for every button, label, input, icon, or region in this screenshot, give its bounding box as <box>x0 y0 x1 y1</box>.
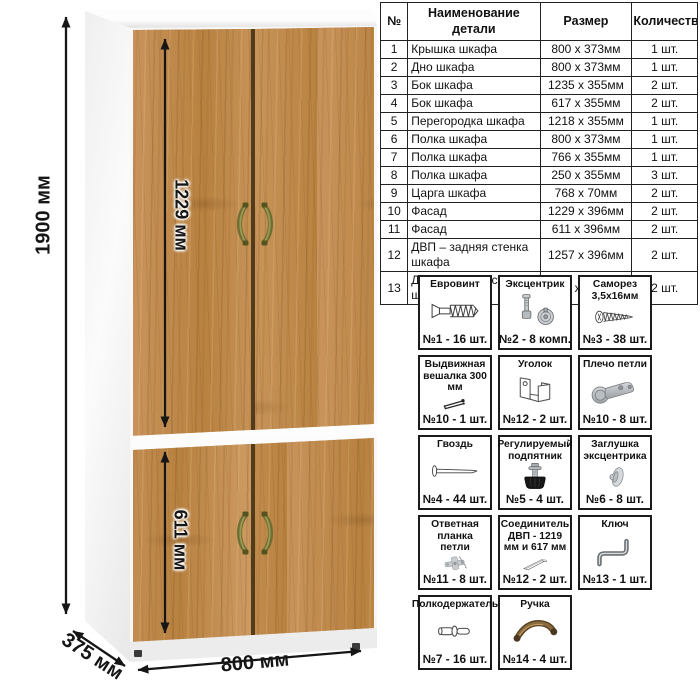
assembly-sheet: 1900 мм 1229 мм 611 мм 800 мм 375 мм № Н… <box>0 0 700 700</box>
hardware-item-name: Евровинт <box>430 279 480 291</box>
part-number-cell: 12 <box>381 239 408 272</box>
cam-lock-icon <box>504 293 566 329</box>
shelf-pin-icon <box>424 613 486 649</box>
table-row: 7 Полка шкафа 766 х 355мм 1 шт. <box>381 149 698 167</box>
hardware-item: Ключ №13 - 1 шт. <box>578 515 652 590</box>
table-row: 1 Крышка шкафа 800 х 373мм 1 шт. <box>381 41 698 59</box>
part-name-cell: ДВП – задняя стенка шкафа <box>408 239 540 272</box>
table-row: 4 Бок шкафа 617 х 355мм 2 шт. <box>381 95 698 113</box>
part-quantity-cell: 2 шт. <box>632 203 698 221</box>
hardware-item: Соединитель ДВП - 1219 мм и 617 мм №12 -… <box>498 515 572 590</box>
part-name-cell: Фасад <box>408 221 540 239</box>
part-number-cell: 2 <box>381 59 408 77</box>
hardware-item: Регулируемый подпятник №5 - 4 шт. <box>498 435 572 510</box>
hardware-item-icon-box <box>581 462 649 492</box>
hardware-item-name: Полкодержатель <box>412 599 498 611</box>
part-name-cell: Дно шкафа <box>408 59 540 77</box>
cam-cap-icon <box>584 462 646 492</box>
column-header-size: Размер <box>540 3 632 41</box>
hardware-item-count: №4 - 44 шт. <box>423 492 487 507</box>
part-name-cell: Полка шкафа <box>408 167 540 185</box>
table-row: 8 Полка шкафа 250 х 355мм 3 шт. <box>381 167 698 185</box>
part-number-cell: 8 <box>381 167 408 185</box>
hardware-item-count: №11 - 8 шт. <box>423 572 487 587</box>
dimension-total-height-label: 1900 мм <box>33 175 56 255</box>
hardware-item-name: Эксцентрик <box>505 279 564 291</box>
part-size-cell: 1218 х 355мм <box>540 113 632 131</box>
part-number-cell: 10 <box>381 203 408 221</box>
hardware-item: Уголок №12 - 2 шт. <box>498 355 572 430</box>
part-quantity-cell: 3 шт. <box>632 167 698 185</box>
hinge-plate-icon <box>424 554 486 572</box>
table-row: 9 Царга шкафа 768 х 70мм 2 шт. <box>381 185 698 203</box>
part-size-cell: 250 х 355мм <box>540 167 632 185</box>
hardware-item: Ручка №14 - 4 шт. <box>498 595 572 670</box>
parts-table: № Наименование детали Размер Количество … <box>380 2 698 305</box>
part-name-cell: Полка шкафа <box>408 149 540 167</box>
table-row: 6 Полка шкафа 800 х 373мм 1 шт. <box>381 131 698 149</box>
hardware-item-count: №2 - 8 комп. <box>499 332 571 347</box>
hardware-item: Плечо петли №10 - 8 шт. <box>578 355 652 430</box>
hardware-item-icon-box <box>501 371 569 412</box>
hardware-item: Саморез 3,5х16мм №3 - 38 шт. <box>578 275 652 350</box>
part-size-cell: 617 х 355мм <box>540 95 632 113</box>
part-size-cell: 1257 х 396мм <box>540 239 632 272</box>
part-number-cell: 11 <box>381 221 408 239</box>
part-size-cell: 800 х 373мм <box>540 41 632 59</box>
part-quantity-cell: 1 шт. <box>632 149 698 167</box>
handle-icon <box>504 613 566 649</box>
column-header-quantity: Количество <box>632 3 698 41</box>
hardware-item-count: №10 - 8 шт. <box>583 412 647 427</box>
part-size-cell: 1235 х 355мм <box>540 77 632 95</box>
hardware-item-count: №1 - 16 шт. <box>423 332 487 347</box>
part-number-cell: 13 <box>381 272 408 305</box>
hardware-item-count: №3 - 38 шт. <box>583 332 647 347</box>
hardware-item-icon-box <box>581 371 649 412</box>
hardware-item-icon-box <box>501 554 569 572</box>
cabinet-front <box>130 26 377 662</box>
part-size-cell: 800 х 373мм <box>540 131 632 149</box>
hex-key-icon <box>584 533 646 569</box>
cabinet-foot <box>352 643 360 650</box>
part-size-cell: 768 х 70мм <box>540 185 632 203</box>
hardware-item-count: №13 - 1 шт. <box>583 572 647 587</box>
hardware-item-icon-box <box>501 611 569 652</box>
hardware-item-name: Саморез 3,5х16мм <box>581 279 649 302</box>
part-name-cell: Перегородка шкафа <box>408 113 540 131</box>
hardware-item-name: Заглушка эксцентрика <box>581 439 649 462</box>
door-handle-icon <box>234 200 250 248</box>
hardware-item: Выдвижная вешалка 300 мм №10 - 1 шт. <box>418 355 492 430</box>
hardware-item-name: Плечо петли <box>583 359 647 371</box>
corner-bracket-icon <box>504 373 566 409</box>
hardware-item-icon-box <box>421 611 489 652</box>
part-name-cell: Фасад <box>408 203 540 221</box>
hinge-arm-icon <box>584 373 646 409</box>
hardware-item-count: №12 - 2 шт. <box>503 412 567 427</box>
part-quantity-cell: 1 шт. <box>632 59 698 77</box>
part-name-cell: Царга шкафа <box>408 185 540 203</box>
dimension-lower-door-label: 611 мм <box>170 510 191 571</box>
part-number-cell: 6 <box>381 131 408 149</box>
part-quantity-cell: 1 шт. <box>632 113 698 131</box>
hardware-item-count: №5 - 4 шт. <box>506 492 564 507</box>
cabinet-side-face <box>85 11 130 662</box>
part-number-cell: 3 <box>381 77 408 95</box>
hardware-item-icon-box <box>421 451 489 492</box>
hardware-item-count: №14 - 4 шт. <box>503 652 567 667</box>
hardware-item: Полкодержатель №7 - 16 шт. <box>418 595 492 670</box>
nail-icon <box>424 453 486 489</box>
hardware-item-icon-box <box>421 291 489 332</box>
hardware-item-count: №10 - 1 шт. <box>423 412 487 427</box>
hardware-item-name: Ответная планка петли <box>421 519 489 554</box>
hardware-item-name: Ручка <box>520 599 549 611</box>
part-number-cell: 4 <box>381 95 408 113</box>
hardware-item-name: Выдвижная вешалка 300 мм <box>421 359 489 394</box>
part-size-cell: 766 х 355мм <box>540 149 632 167</box>
part-number-cell: 5 <box>381 113 408 131</box>
table-row: 3 Бок шкафа 1235 х 355мм 2 шт. <box>381 77 698 95</box>
hardware-item: Эксцентрик №2 - 8 комп. <box>498 275 572 350</box>
part-name-cell: Крышка шкафа <box>408 41 540 59</box>
hardware-item-icon-box <box>501 462 569 492</box>
hardware-item: Заглушка эксцентрика №6 - 8 шт. <box>578 435 652 510</box>
column-header-name: Наименование детали <box>408 3 540 41</box>
part-number-cell: 9 <box>381 185 408 203</box>
tapping-screw-icon <box>584 302 646 332</box>
door-handle-icon <box>234 509 250 557</box>
hardware-item-count: №7 - 16 шт. <box>423 652 487 667</box>
part-quantity-cell: 2 шт. <box>632 95 698 113</box>
part-quantity-cell: 1 шт. <box>632 41 698 59</box>
part-quantity-cell: 2 шт. <box>632 239 698 272</box>
part-number-cell: 7 <box>381 149 408 167</box>
table-row: 10 Фасад 1229 х 396мм 2 шт. <box>381 203 698 221</box>
column-header-number: № <box>381 3 408 41</box>
euro-screw-icon <box>424 293 486 329</box>
hardware-item-icon-box <box>501 291 569 332</box>
part-quantity-cell: 2 шт. <box>632 185 698 203</box>
wardrobe-drawing: 1900 мм 1229 мм 611 мм 800 мм 375 мм <box>0 0 410 700</box>
part-name-cell: Бок шкафа <box>408 95 540 113</box>
part-number-cell: 1 <box>381 41 408 59</box>
hardware-item: Евровинт №1 - 16 шт. <box>418 275 492 350</box>
parts-table-body: 1 Крышка шкафа 800 х 373мм 1 шт. 2 Дно ш… <box>381 41 698 305</box>
hardware-item-icon-box <box>421 554 489 572</box>
hardware-item: Гвоздь №4 - 44 шт. <box>418 435 492 510</box>
hardware-item-icon-box <box>421 394 489 412</box>
table-row: 2 Дно шкафа 800 х 373мм 1 шт. <box>381 59 698 77</box>
hardware-item-name: Гвоздь <box>437 439 473 451</box>
part-quantity-cell: 1 шт. <box>632 131 698 149</box>
hdf-connector-icon <box>504 554 566 572</box>
door-handle-icon <box>260 200 276 248</box>
hardware-item-name: Регулируемый подпятник <box>497 439 572 462</box>
hardware-item: Ответная планка петли №11 - 8 шт. <box>418 515 492 590</box>
part-size-cell: 800 х 373мм <box>540 59 632 77</box>
hardware-item-name: Соединитель ДВП - 1219 мм и 617 мм <box>501 519 570 554</box>
part-name-cell: Бок шкафа <box>408 77 540 95</box>
dimension-width-label: 800 мм <box>220 649 290 678</box>
part-size-cell: 1229 х 396мм <box>540 203 632 221</box>
hardware-item-count: №6 - 8 шт. <box>586 492 644 507</box>
hardware-item-icon-box <box>581 531 649 572</box>
part-quantity-cell: 2 шт. <box>632 221 698 239</box>
table-row: 11 Фасад 611 х 396мм 2 шт. <box>381 221 698 239</box>
dimension-upper-door-label: 1229 мм <box>171 179 192 251</box>
adjustable-foot-icon <box>504 462 566 492</box>
part-quantity-cell: 2 шт. <box>632 77 698 95</box>
door-handle-icon <box>260 509 276 557</box>
table-row: 12 ДВП – задняя стенка шкафа 1257 х 396м… <box>381 239 698 272</box>
hardware-grid: Евровинт №1 - 16 шт. Эксцентрик №2 - 8 к… <box>418 275 652 670</box>
part-size-cell: 611 х 396мм <box>540 221 632 239</box>
parts-table-header: № Наименование детали Размер Количество <box>381 3 698 41</box>
hardware-item-count: №12 - 2 шт. <box>503 572 567 587</box>
hardware-item-icon-box <box>581 302 649 332</box>
pullout-hanger-icon <box>424 394 486 412</box>
part-name-cell: Полка шкафа <box>408 131 540 149</box>
cabinet-foot <box>134 650 142 657</box>
hardware-item-name: Ключ <box>601 519 628 531</box>
hardware-item-name: Уголок <box>518 359 552 371</box>
table-row: 5 Перегородка шкафа 1218 х 355мм 1 шт. <box>381 113 698 131</box>
